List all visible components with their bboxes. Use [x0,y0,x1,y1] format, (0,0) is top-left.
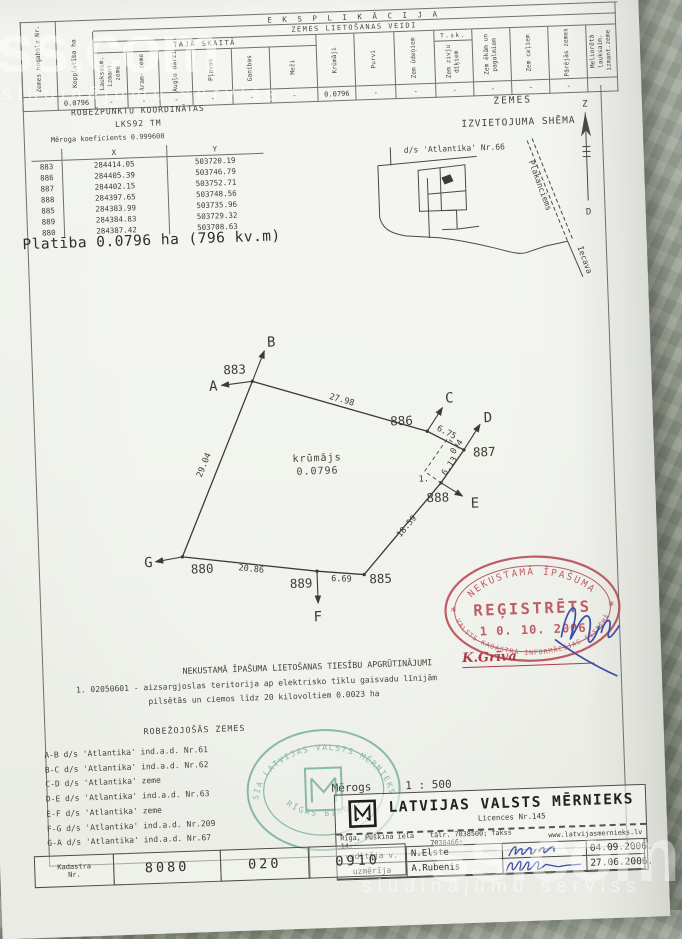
cadastre-cell-2: 020 [219,847,310,882]
expl-col-fish-ponds: Zem zivju dīķiem [435,40,474,83]
expl-col-orchards: Augļu dārzi [159,50,193,93]
schema-parcel-label: d/s 'Atlantika' Nr.66 [404,142,506,155]
expl-col-agri-land: Lauksaim. izmant. zeme [94,52,128,95]
signature-rubenis [503,855,586,873]
company-name-block: LATVIJAS VALSTS MĒRNIEKS Licences Nr.145 [377,791,646,826]
letter-b: B [267,334,276,350]
vertex-886: 886 [390,413,413,429]
expl-col-roads: Zem ceļiem [510,27,550,81]
road-label: Plakanciems [527,159,554,212]
paper-sheet: Zemes nogabala Nr. Kopplatība ha E K S P… [0,0,670,939]
encumbrance-line2: pilsētās un ciemos līdz 20 kilovoltiem 0… [148,689,379,706]
land-use-area: 0.0796 [296,465,338,477]
vertex-880: 880 [191,561,214,577]
len-883-886: 27.98 [328,392,355,409]
vertex-887: 887 [473,444,496,460]
schema-title-line2: IZVIETOJUMA SHĒMA [461,115,576,130]
cadastre-label: Kadastra Nr. [34,853,115,888]
expl-col-swamps: Purvi [354,32,396,86]
location-schema: ZEMES IZVIETOJUMA SHĒMA d/s 'Atlantika' … [362,84,609,297]
place-label: Iecava [576,245,594,275]
cadastre-cell-3: 0910 [308,843,407,878]
expl-val-8: 0.0796 [318,87,356,102]
expl-col-pastures: Ganības [232,48,271,91]
survey-date: 27.06.2006. [587,854,645,871]
edge-lengths: 27.98 6.75 0.4 6.13 18.59 6.69 20.86 29.… [192,387,470,590]
len-888-885: 18.59 [395,514,419,540]
vertex-883: 883 [223,362,246,378]
expl-col-shrubs: Krūmāji [316,34,356,88]
coords-table: X Y 883284414.05503720.19 886284405.3950… [31,142,266,239]
len-885-889: 6.69 [331,574,352,585]
letter-a: A [209,379,219,395]
expl-col-under-water: Zem ūdeņiem [394,31,436,85]
vertex-889: 889 [290,575,313,591]
letter-d: D [484,410,493,426]
letter-g: G [144,555,153,571]
expl-col-total-area: Kopplatība ha [56,32,95,97]
expl-col-buildings: Zem ēkām un pagalmiem [472,28,512,82]
letter-f: F [313,609,322,625]
expl-col-parcel-nr: Zemes nogabala Nr. [21,22,59,98]
photographed-survey-document: { "watermark": {"brand": "ss.com", "tagl… [0,0,682,910]
expl-col-ameliorated: Meliorētā lauksaim. izmant.zeme [586,24,618,78]
surveyor-name: A.Rubenis [407,859,503,877]
coords-system: LKS92 TM [33,115,243,131]
len-880-883: 29.04 [195,451,214,478]
cadastre-cell-1: 8080 [113,850,222,886]
offset-width-label: 1. [418,474,429,484]
schema-title-line1: ZEMES [493,94,532,106]
expl-col-meadows: Pļavas [192,49,233,92]
vertex-885: 885 [369,571,392,587]
bordering-list: A-B d/s 'Atlantika' ind.a.d. Nr.61 B-C d… [44,743,216,852]
expl-val-7: - [271,88,318,104]
vertex-888: 888 [426,490,449,506]
road-plakanciems [527,137,573,242]
len-886-887: 6.75 [435,424,458,442]
coords-scale-note: Mēroga koeficients 0.999600 [51,132,165,144]
cadastre-label-line2: Nr. [68,871,81,880]
letter-e: E [470,495,479,511]
expl-col-other: Pārējās zemes [548,25,588,79]
north-label: Z [582,99,588,109]
land-use-label: krūmājs [292,452,342,465]
company-logo-icon [347,798,378,829]
surveyor-signature [503,856,587,874]
expl-col-arable: Aram- zeme [127,51,160,94]
north-arrow: Z D [580,99,594,217]
company-web: www.latvijasmernieks.lv [548,827,642,838]
south-label: D [586,207,592,217]
settlement-outline [377,141,568,258]
stamp-star-left: * [450,604,458,618]
subject-parcel-marker [441,174,453,184]
len-887-888: 6.13 [440,455,460,478]
letter-c: C [445,390,454,406]
document-content: Zemes nogabala Nr. Kopplatība ha E K S P… [0,0,682,921]
registrar-signature [540,579,639,687]
expl-col-forests: Meži [270,46,318,90]
len-889-880: 20.86 [238,563,264,576]
